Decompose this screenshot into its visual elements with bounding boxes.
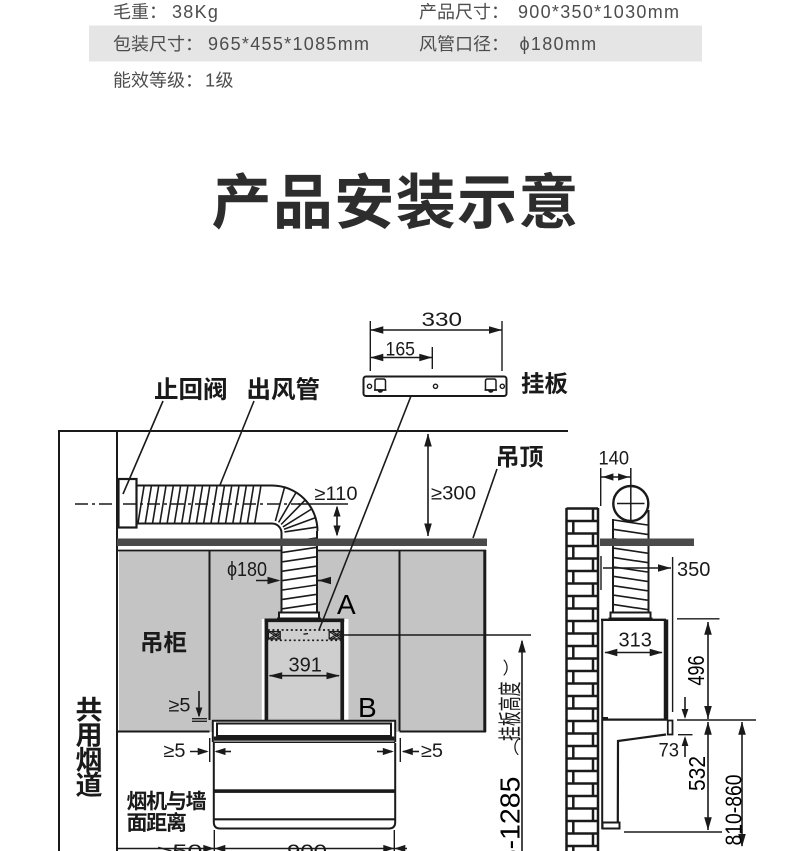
svg-text:B: B (358, 692, 377, 723)
svg-text:235-1285: 235-1285 (495, 777, 526, 851)
svg-text:532: 532 (684, 756, 710, 791)
svg-text:≥5: ≥5 (421, 741, 443, 762)
svg-text:ϕ180: ϕ180 (227, 559, 267, 581)
svg-text:350: 350 (677, 559, 710, 581)
svg-text:496: 496 (683, 656, 709, 686)
svg-text:1: 1 (205, 71, 216, 91)
svg-text:140: 140 (599, 449, 630, 470)
svg-text:900*350*1030mm: 900*350*1030mm (518, 2, 680, 22)
svg-text:73: 73 (659, 741, 680, 762)
svg-text:165: 165 (386, 340, 416, 361)
svg-text:391: 391 (289, 655, 322, 677)
svg-text:900: 900 (287, 842, 327, 851)
svg-text:A: A (337, 589, 356, 620)
svg-text:≥5: ≥5 (169, 696, 191, 717)
svg-text:≥5: ≥5 (164, 741, 186, 762)
svg-text:330: 330 (422, 310, 463, 331)
svg-text:810-860: 810-860 (721, 775, 747, 846)
svg-text:38Kg: 38Kg (172, 2, 219, 22)
svg-text:≥110: ≥110 (315, 484, 358, 505)
svg-text:313: 313 (619, 630, 652, 652)
svg-text:965*455*1085mm: 965*455*1085mm (208, 34, 370, 54)
svg-text:≥300: ≥300 (431, 484, 476, 505)
svg-text:ϕ180mm: ϕ180mm (520, 34, 598, 54)
svg-text:≥50: ≥50 (158, 842, 203, 851)
